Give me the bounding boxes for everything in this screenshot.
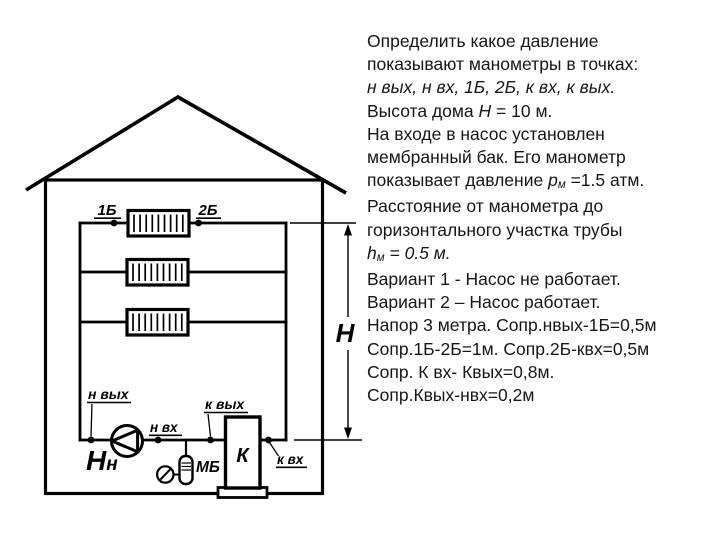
label-pump-outlet: н вых	[88, 386, 130, 402]
label-membrane-tank: МБ	[196, 459, 220, 476]
radiator-1	[128, 211, 189, 237]
point-boiler-outlet	[207, 437, 214, 444]
point-pump-inlet	[155, 437, 162, 444]
text-segment: м	[377, 252, 385, 264]
problem-line-10: hм = 0.5 м.	[367, 242, 719, 268]
schematic-diagram: 1Б 2Б н вых н вх к вых к вх К МБ Нн Н	[0, 0, 366, 540]
point-boiler-inlet	[265, 437, 272, 444]
pump-head-sub: н	[106, 454, 118, 475]
problem-line-16: Сопр.Квых-нвх=0,2м	[367, 384, 719, 407]
problem-line-8: Расстояние от манометра до	[367, 195, 719, 218]
problem-line-13: Напор 3 метра. Сопр.нвых-1Б=0,5м	[367, 314, 719, 337]
label-1b: 1Б	[98, 202, 117, 219]
text-segment: Высота дома	[367, 101, 479, 121]
problem-line-12: Вариант 2 – Насос работает.	[367, 291, 719, 314]
house	[26, 97, 346, 494]
text-segment: м	[558, 179, 566, 191]
problem-line-4: Высота дома Н = 10 м.	[367, 100, 719, 123]
point-2b	[195, 220, 202, 227]
problem-line-5: На входе в насос установлен	[367, 123, 719, 146]
text-segment: р	[548, 170, 558, 190]
problem-line-1: Определить какое давление	[367, 30, 719, 53]
point-1b	[111, 220, 118, 227]
problem-statement: Определить какое давление показывают ман…	[367, 30, 719, 407]
problem-line-2: показывают манометры в точках:	[367, 53, 719, 76]
point-pump-outlet	[88, 437, 95, 444]
label-boiler-k: К	[236, 445, 250, 467]
leader-boiler-outlet	[208, 414, 211, 437]
label-boiler-outlet: к вых	[205, 396, 245, 412]
problem-line-14: Сопр.1Б-2Б=1м. Сопр.2Б-квх=0,5м	[367, 338, 719, 361]
label-pump-inlet: н вх	[150, 420, 178, 435]
membrane-tank-assembly	[157, 456, 192, 484]
radiator-2	[127, 260, 188, 286]
text-segment: =1.5 атм.	[566, 170, 645, 190]
text-segment: показывает давление	[367, 170, 548, 190]
label-2b: 2Б	[198, 202, 218, 219]
text-segment: Н	[479, 101, 492, 121]
problem-line-15: Сопр. К вх- Квых=0,8м.	[367, 361, 719, 384]
text-segment: h	[367, 243, 377, 263]
problem-line-6: мембранный бак. Его манометр	[367, 146, 719, 169]
dim-arrow-up	[344, 224, 352, 236]
pump-head-main: Н	[86, 445, 107, 476]
problem-line-9: горизонтального участка трубы	[367, 219, 719, 242]
problem-line-7: показывает давление рм =1.5 атм.	[367, 169, 719, 195]
problem-line-3: н вых, н вх, 1Б, 2Б, к вх, к вых.	[367, 76, 719, 99]
dim-arrow-down	[344, 428, 352, 440]
text-segment: = 10 м.	[491, 101, 552, 121]
label-house-height: Н	[336, 318, 356, 348]
radiator-3	[127, 310, 188, 336]
leader-pump-outlet	[91, 404, 92, 437]
pump-symbol	[112, 426, 143, 457]
text-segment: = 0.5 м.	[385, 243, 451, 263]
problem-line-11: Вариант 1 - Насос не работает.	[367, 268, 719, 291]
label-boiler-inlet: к вх	[277, 452, 304, 467]
slide: 1Б 2Б н вых н вх к вых к вх К МБ Нн Н Оп…	[0, 0, 720, 540]
